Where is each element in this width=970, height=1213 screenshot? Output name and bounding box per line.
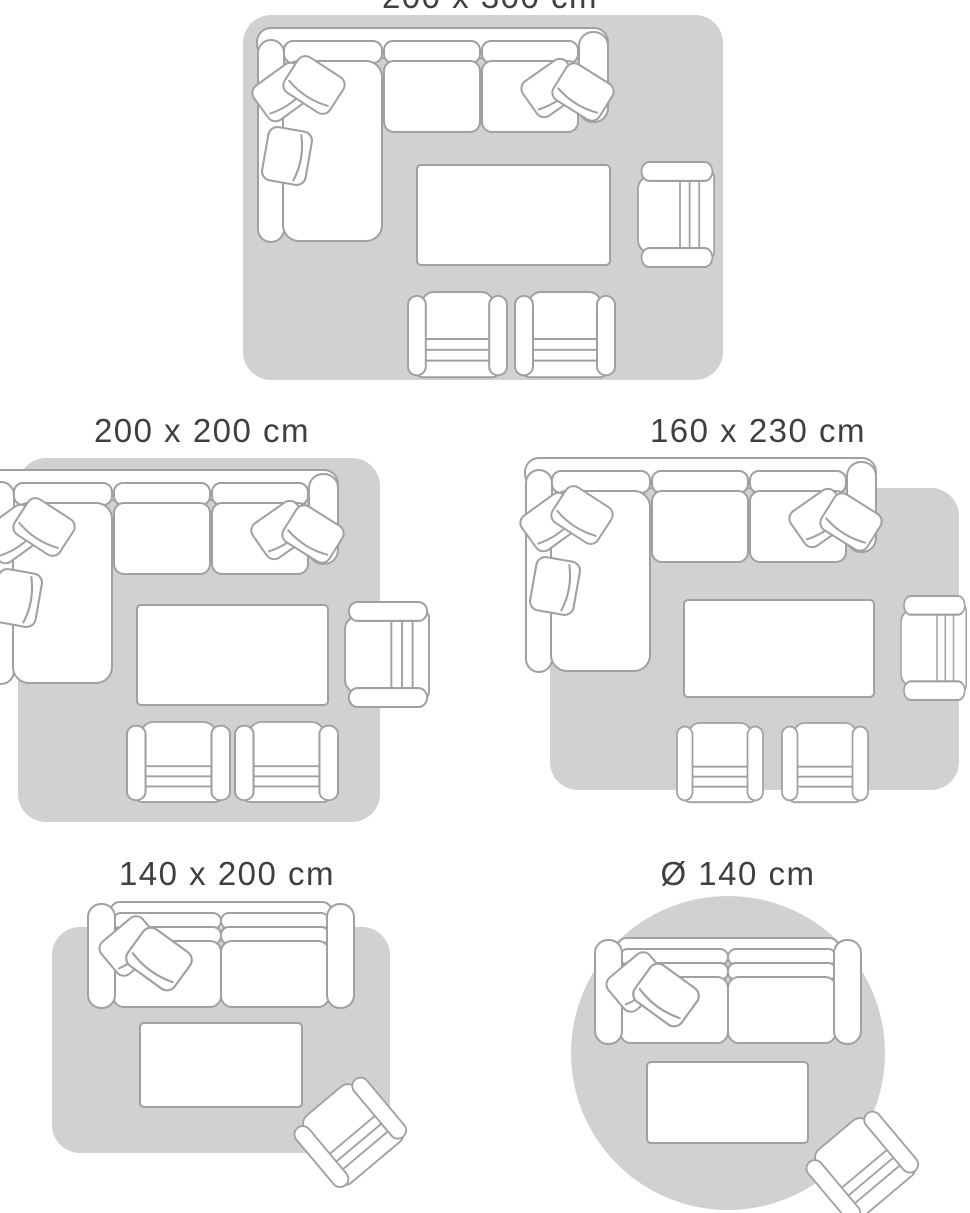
- rug-size-guide-illustration: [0, 0, 970, 1213]
- armchair-facing-left: [638, 162, 714, 267]
- two-seat-sofa: [88, 902, 354, 1008]
- armchair-facing-up: [235, 722, 338, 802]
- armchair-facing-up: [408, 292, 507, 377]
- coffee-table: [647, 1062, 808, 1143]
- coffee-table: [684, 600, 874, 697]
- diagram-d140-scene: [571, 896, 923, 1213]
- coffee-table: [417, 165, 610, 265]
- diagram-200x300-scene: [243, 15, 723, 380]
- armchair-facing-left: [901, 596, 966, 700]
- armchair-facing-left: [345, 602, 429, 707]
- coffee-table: [140, 1023, 302, 1107]
- armchair-facing-up: [782, 723, 868, 802]
- diagram-200x200-scene: [0, 458, 429, 822]
- diagram-160x230-scene: [517, 458, 966, 802]
- two-seat-sofa: [595, 938, 861, 1044]
- armchair-facing-up: [677, 723, 763, 802]
- coffee-table: [137, 605, 328, 705]
- armchair-facing-up: [127, 722, 230, 802]
- armchair-facing-up: [515, 292, 615, 377]
- diagram-140x200-scene: [52, 902, 411, 1192]
